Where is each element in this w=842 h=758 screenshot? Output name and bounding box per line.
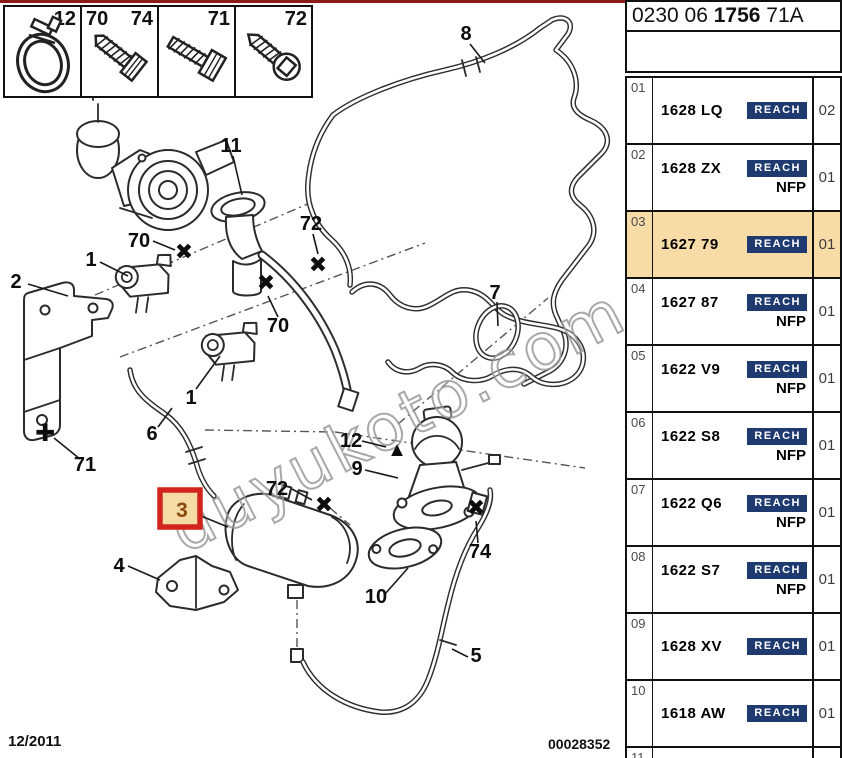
row-number: 04 [627,279,653,344]
table-row[interactable]: 07 1622 Q6 REACH NFP 01 [627,480,840,547]
fastener-mark-icon: ✖ [257,270,275,295]
qty-value: 01 [814,413,840,478]
nfp-label: NFP [776,579,812,598]
qty-value: 01 [814,145,840,210]
washer-screw-icon [236,15,313,97]
reach-badge[interactable]: REACH [747,428,807,445]
row-number: 10 [627,681,653,746]
part-number: 1627 87 [661,294,719,311]
reach-badge[interactable]: REACH [747,236,807,253]
nfp-label: NFP [776,445,812,464]
qty-value: 01 [814,614,840,679]
part-number: 1622 S7 [661,562,720,579]
row-number: 08 [627,547,653,612]
callout-layer: 811727012701671724129774105✖✖✖✚✖✖▲ [10,23,500,667]
part-callout-7: 7 [489,282,500,304]
qty-value: 01 [814,279,840,344]
screw-icon [82,15,159,97]
part-number: 1628 XV [661,638,722,655]
part-callout-12: 12 [340,430,362,452]
part-callout-9: 9 [351,458,362,480]
qty-value: 01 [814,212,840,277]
part-number: 1628 LQ [661,102,723,119]
highlighted-callout-3: 3 [160,490,200,527]
part-callout-1: 1 [85,249,96,271]
reach-badge[interactable]: REACH [747,294,807,311]
table-row[interactable]: 08 1622 S7 REACH NFP 01 [627,547,840,614]
svg-text:3: 3 [176,499,188,522]
part-number: 1627 79 [661,236,719,253]
reach-badge[interactable]: REACH [747,160,807,177]
nfp-label: NFP [776,512,812,531]
part-callout-10: 10 [365,586,387,608]
row-number: 09 [627,614,653,679]
reach-badge[interactable]: REACH [747,705,807,722]
fastener-mark-icon: ▲ [387,439,407,461]
qty-value: 01 [814,480,840,545]
turbo-outlet-pipe-11 [209,188,359,411]
row-number: 07 [627,480,653,545]
qty-value: 01 [814,346,840,411]
fastener-mark-icon: ✖ [309,252,327,277]
table-row[interactable]: 04 1627 87 REACH NFP 01 [627,279,840,346]
part-number: 1622 S8 [661,428,720,445]
parts-diagram: duyukoto.com 3 [0,0,625,758]
table-row[interactable]: 03 1627 79 REACH 01 [627,212,840,279]
legend-cell-clamp: 12 [5,7,82,96]
parts-list-panel: 0230 06 1756 71A 01 1628 LQ REACH 02 02 … [625,0,842,758]
row-number: 01 [627,78,653,143]
part-number: 1628 ZX [661,160,721,177]
reach-badge[interactable]: REACH [747,102,807,119]
table-row[interactable]: 06 1622 S8 REACH NFP 01 [627,413,840,480]
fastener-mark-icon: ✖ [467,495,485,520]
part-callout-8: 8 [460,23,471,45]
part-callout-71: 71 [74,454,96,476]
part-callout-4: 4 [113,555,125,577]
table-row[interactable]: 01 1628 LQ REACH 02 [627,78,840,145]
document-number: 00028352 [548,736,610,752]
part-number: 1622 Q6 [661,495,722,512]
solenoid-valve-1a [111,248,173,317]
screw-icon [159,15,236,97]
part-number: 1622 V9 [661,361,720,378]
catalog-code-suffix: 71A [760,4,803,28]
fastener-mark-icon: ✖ [175,239,193,264]
part-callout-74: 74 [469,541,492,563]
part-callout-11: 11 [220,135,241,157]
fastener-mark-icon: ✖ [315,492,333,517]
parts-table: 01 1628 LQ REACH 02 02 1628 ZX REACH NFP… [625,76,842,758]
catalog-code-main: 1756 [714,4,761,28]
part-callout-72: 72 [300,213,322,235]
header-spacer-box [625,32,842,73]
parts-table-body: 01 1628 LQ REACH 02 02 1628 ZX REACH NFP… [627,78,840,758]
fastener-legend: 12 70 74 [3,5,313,98]
row-number: 03 [627,212,653,277]
reach-badge[interactable]: REACH [747,562,807,579]
reach-badge[interactable]: REACH [747,638,807,655]
nfp-label: NFP [776,378,812,397]
clamp-icon [5,15,82,97]
part-callout-72: 72 [266,478,288,500]
reach-badge[interactable]: REACH [747,361,807,378]
nfp-label: NFP [776,311,812,330]
part-number: 1618 AW [661,705,726,722]
table-row[interactable]: 09 1628 XV REACH 01 [627,614,840,681]
mounting-bracket-2 [24,282,113,440]
catalog-page: 12 70 74 [0,0,842,758]
part-callout-1: 1 [185,387,196,409]
qty-value [814,748,840,758]
qty-value: 01 [814,681,840,746]
table-row[interactable]: 02 1628 ZX REACH NFP 01 [627,145,840,212]
legend-cell-screw-71: 71 [159,7,236,96]
table-row[interactable]: 11 [627,748,840,758]
qty-value: 01 [814,547,840,612]
table-row[interactable]: 10 1618 AW REACH 01 [627,681,840,748]
row-number: 11 [627,748,653,758]
catalog-code-prefix: 0230 06 [632,4,714,28]
table-row[interactable]: 05 1622 V9 REACH NFP 01 [627,346,840,413]
part-callout-70: 70 [128,230,150,252]
row-number: 02 [627,145,653,210]
catalog-reference-header: 0230 06 1756 71A [625,0,842,32]
row-number: 06 [627,413,653,478]
watermark: duyukoto.com [158,274,625,568]
row-number: 05 [627,346,653,411]
nfp-label: NFP [776,177,812,196]
part-callout-5: 5 [470,645,481,667]
vacuum-hose-6 [130,370,214,496]
part-callout-2: 2 [10,271,21,293]
legend-cell-screw-72: 72 [236,7,311,96]
revision-date: 12/2011 [8,733,61,750]
fastener-mark-icon: ✚ [35,420,55,447]
qty-value: 02 [814,78,840,143]
part-callout-6: 6 [146,423,157,445]
reach-badge[interactable]: REACH [747,495,807,512]
part-callout-70: 70 [267,315,289,337]
legend-cell-screw-70-74: 70 74 [82,7,159,96]
